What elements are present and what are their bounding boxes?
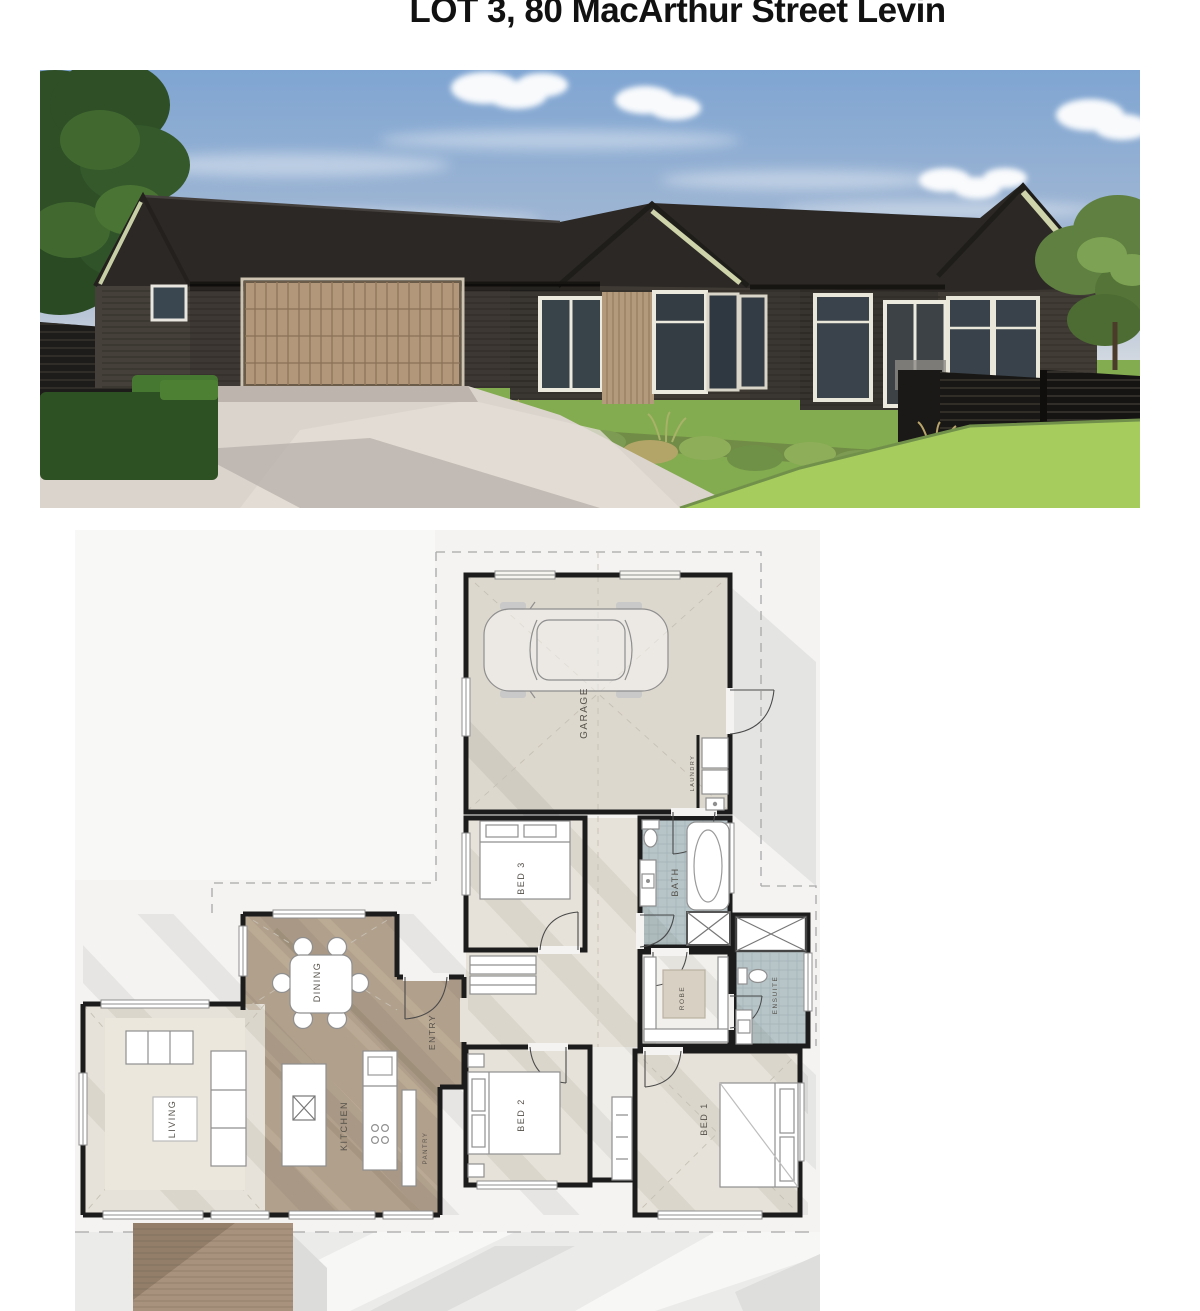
- garage-door: [242, 279, 463, 388]
- car-top-view: [484, 602, 668, 698]
- bed1-bed: [720, 1083, 798, 1187]
- page: LOT 3, 80 MacArthur Street Levin: [0, 0, 1200, 1311]
- ensuite-shower: [736, 917, 806, 951]
- laundry-label: LAUNDRY: [690, 755, 696, 792]
- dining-label: DINING: [312, 962, 322, 1003]
- kitchen-island: [282, 1064, 326, 1166]
- bath-label: BATH: [670, 867, 680, 896]
- pantry-label: PANTRY: [423, 1132, 429, 1165]
- wardrobe: [612, 1097, 632, 1180]
- bathtub-icon: [687, 822, 729, 910]
- entry-windows: [540, 292, 766, 404]
- entry-label: ENTRY: [427, 1014, 437, 1050]
- robe-label: ROBE: [679, 986, 686, 1010]
- toilet-icon: [642, 820, 659, 847]
- floor-plan: GARAGE LAUNDRY BED 3 BATH ENSUITE ROBE B…: [75, 530, 820, 1311]
- ensuite-toilet: [738, 968, 767, 984]
- floor-plan-svg: GARAGE LAUNDRY BED 3 BATH ENSUITE ROBE B…: [75, 530, 820, 1311]
- kitchen-bench: [363, 1051, 397, 1170]
- living-label: LIVING: [167, 1100, 177, 1139]
- garage-label: GARAGE: [579, 687, 590, 739]
- ensuite-vanity: [736, 1010, 752, 1044]
- exterior-render-svg: [40, 70, 1140, 508]
- ensuite-label: ENSUITE: [772, 976, 779, 1015]
- pantry-shelf: [402, 1090, 416, 1186]
- bed3-label: BED 3: [516, 861, 526, 895]
- gable-window: [152, 286, 186, 320]
- bath-vanity: [640, 860, 656, 906]
- bed2-label: BED 2: [516, 1098, 526, 1132]
- exterior-render-photo: [40, 70, 1140, 508]
- bed1-label: BED 1: [699, 1102, 709, 1136]
- timber-cladding: [602, 292, 654, 404]
- kitchen-label: KITCHEN: [339, 1101, 349, 1151]
- page-title: LOT 3, 80 MacArthur Street Levin: [0, 0, 1200, 31]
- laundry-appliances: [702, 738, 728, 810]
- bath-shower: [687, 912, 730, 945]
